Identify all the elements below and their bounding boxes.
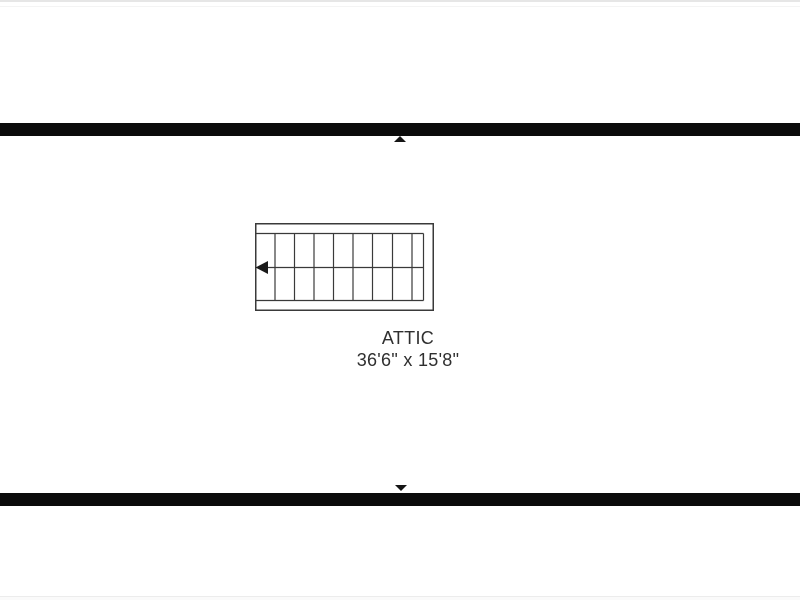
top-edge-line (0, 6, 800, 7)
wall-bottom (0, 493, 800, 506)
room-dimensions: 36'6" x 15'8" (357, 349, 460, 371)
floorplan-canvas: ATTIC 36'6" x 15'8" (0, 0, 800, 600)
top-edge-strip (0, 0, 800, 2)
room-label: ATTIC 36'6" x 15'8" (357, 327, 460, 371)
staircase-drawing (255, 223, 434, 311)
triangle-marker-up-icon (394, 136, 406, 142)
triangle-marker-down-icon (395, 485, 407, 491)
wall-top (0, 123, 800, 136)
room-name: ATTIC (357, 327, 460, 349)
stair-arrow-icon (256, 261, 269, 274)
